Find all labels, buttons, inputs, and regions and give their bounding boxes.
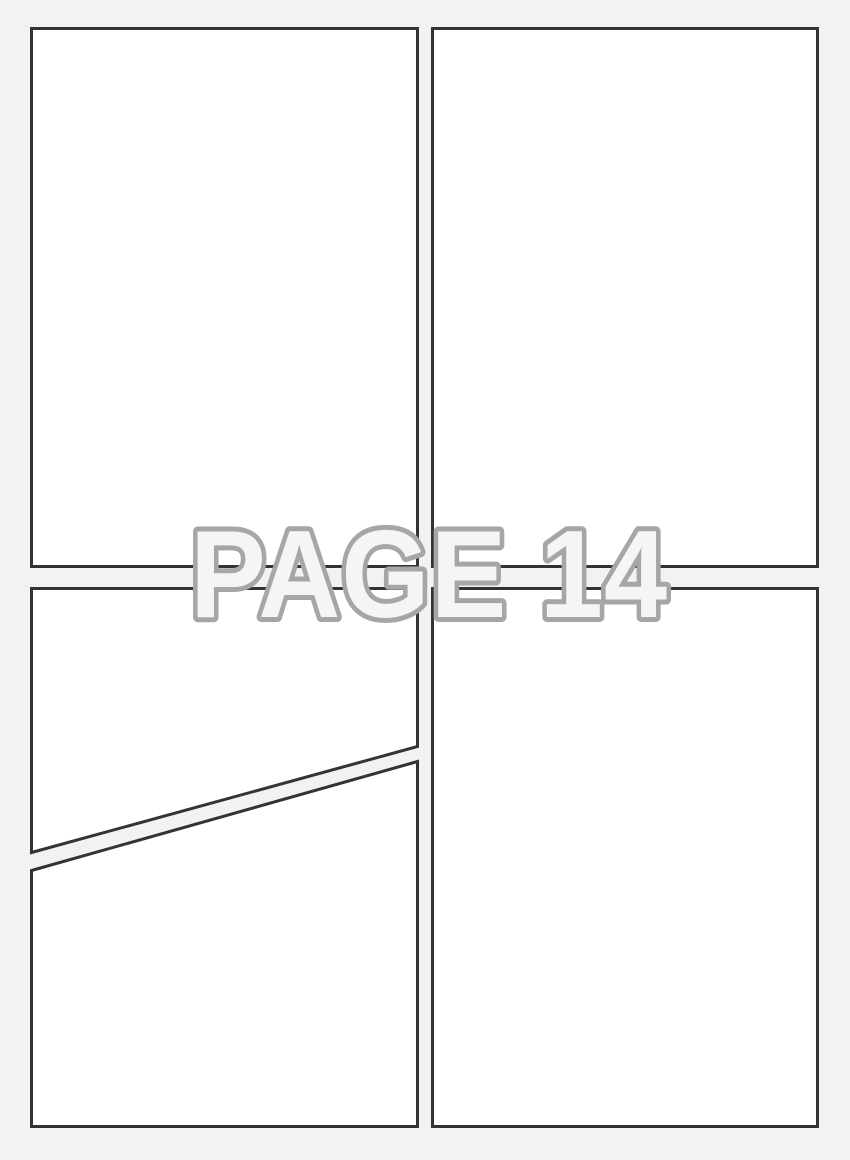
panel-top-left	[32, 29, 418, 567]
panel-top-right	[433, 29, 818, 567]
page-number-label: PAGE 14	[190, 506, 668, 644]
comic-page-canvas: PAGE 14	[0, 0, 850, 1160]
comic-page-template: PAGE 14	[0, 0, 850, 1160]
panel-bottom-right	[433, 589, 818, 1127]
